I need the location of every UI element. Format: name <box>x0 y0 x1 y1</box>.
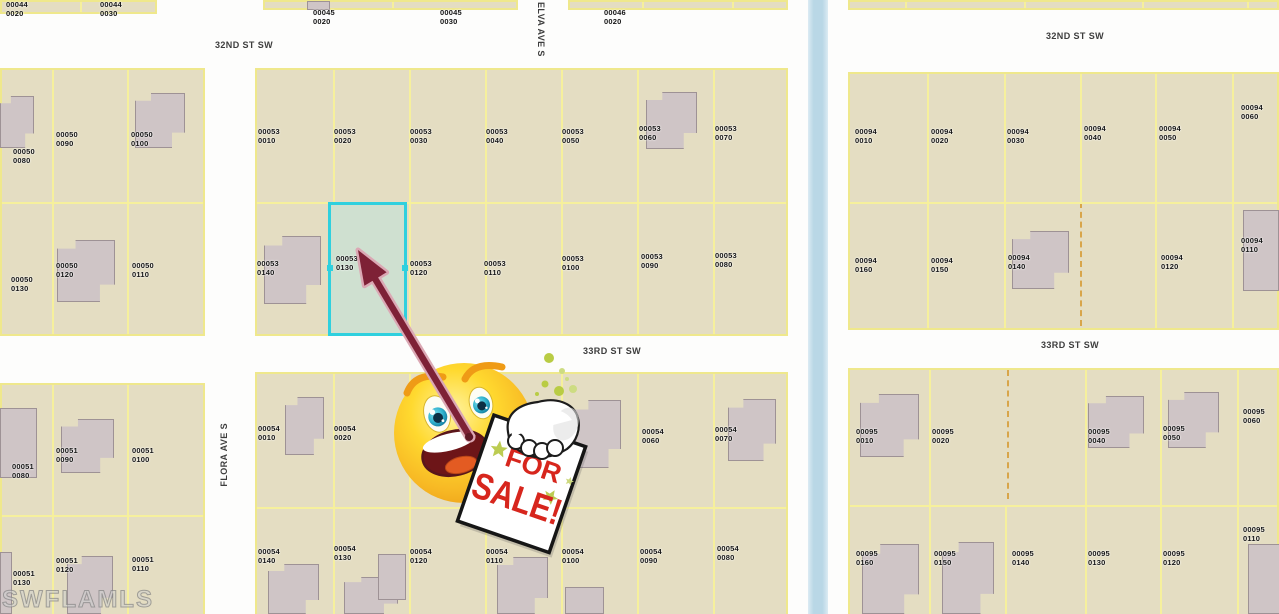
parcel-label: 00094 0060 <box>1241 104 1263 121</box>
parcel-label: 00053 0020 <box>334 128 356 145</box>
parcel-label: 00095 0040 <box>1088 428 1110 445</box>
parcel-label: 00054 0080 <box>717 545 739 562</box>
canal-waterway <box>808 0 828 614</box>
parcel-label: 00053 0040 <box>486 128 508 145</box>
parcel-label: 00094 0150 <box>931 257 953 274</box>
parcel-label: 00051 0110 <box>132 556 154 573</box>
parcel-label: 00053 0130 <box>336 255 358 272</box>
parcel-label: 00094 0140 <box>1008 254 1030 271</box>
mls-watermark: SWFLAMLS <box>2 586 154 614</box>
map-block <box>848 72 1279 330</box>
parcel-label: 00051 0090 <box>56 447 78 464</box>
parcel-label: 00053 0110 <box>484 260 506 277</box>
parcel-label: 00050 0130 <box>11 276 33 293</box>
parcel-corner-nub <box>327 265 333 271</box>
map-block <box>263 0 518 10</box>
parcel-label: 00053 0120 <box>410 260 432 277</box>
parcel-label: 00095 0120 <box>1163 550 1185 567</box>
parcel-label: 00054 0130 <box>334 545 356 562</box>
parcel-label: 00044 0030 <box>100 1 122 18</box>
parcel-label: 00051 0120 <box>56 557 78 574</box>
parcel-label: 00094 0010 <box>855 128 877 145</box>
parcel-label: 00053 0100 <box>562 255 584 272</box>
parcel-label: 00053 0140 <box>257 260 279 277</box>
parcel-label: 00053 0090 <box>641 253 663 270</box>
parcel-corner-nub <box>402 265 408 271</box>
parcel-label: 00054 0020 <box>334 425 356 442</box>
parcel-label: 00054 0110 <box>486 548 508 565</box>
parcel-label: 00054 0070 <box>715 426 737 443</box>
parcel-label: 00054 0090 <box>640 548 662 565</box>
parcel-label: 00050 0120 <box>56 262 78 279</box>
map-block <box>568 0 788 10</box>
building-footprint <box>378 554 406 600</box>
parcel-label: 00095 0150 <box>934 550 956 567</box>
parcel-label: 00050 0090 <box>56 131 78 148</box>
parcel-label: 00050 0100 <box>131 131 153 148</box>
parcel-label: 00051 0100 <box>132 447 154 464</box>
building-footprint <box>565 587 604 614</box>
parcel-label: 00053 0050 <box>562 128 584 145</box>
street-label: 32ND ST SW <box>1046 31 1104 41</box>
parcel-label: 00053 0010 <box>258 128 280 145</box>
parcel-label: 00051 0130 <box>13 570 35 587</box>
street-label: FLORA AVE S <box>219 423 229 487</box>
parcel-label: 00053 0030 <box>410 128 432 145</box>
parcel-label: 00044 0020 <box>6 1 28 18</box>
parcel-label: 00054 0010 <box>258 425 280 442</box>
parcel-label: 00095 0130 <box>1088 550 1110 567</box>
parcel-label: 00054 0140 <box>258 548 280 565</box>
parcel-label: 00095 0050 <box>1163 425 1185 442</box>
parcel-label: 00094 0020 <box>931 128 953 145</box>
street-label: 33RD ST SW <box>583 346 641 356</box>
parcel-label: 00045 0020 <box>313 9 335 26</box>
parcel-label: 00094 0120 <box>1161 254 1183 271</box>
parcel-map[interactable]: 00044 002000044 003000045 002000045 0030… <box>0 0 1279 614</box>
parcel-label: 00095 0010 <box>856 428 878 445</box>
parcel-label: 00054 0120 <box>410 548 432 565</box>
parcel-label: 00094 0160 <box>855 257 877 274</box>
parcel-label: 00051 0080 <box>12 463 34 480</box>
parcel-label: 00095 0140 <box>1012 550 1034 567</box>
parcel-label: 00053 0070 <box>715 125 737 142</box>
parcel-label: 00094 0050 <box>1159 125 1181 142</box>
street-label: ELVA AVE S <box>536 2 546 57</box>
parcel-label: 00095 0020 <box>932 428 954 445</box>
parcel-label: 00053 0060 <box>639 125 661 142</box>
parcel-label: 00095 0110 <box>1243 526 1265 543</box>
parcel-label: 00095 0160 <box>856 550 878 567</box>
parcel-label: 00054 0060 <box>642 428 664 445</box>
parcel-label: 00095 0060 <box>1243 408 1265 425</box>
parcel-label: 00050 0080 <box>13 148 35 165</box>
building-footprint <box>1248 544 1279 614</box>
parcel-label: 00094 0040 <box>1084 125 1106 142</box>
parcel-label: 00094 0110 <box>1241 237 1263 254</box>
parcel-label: 00053 0080 <box>715 252 737 269</box>
parcel-label: 00094 0030 <box>1007 128 1029 145</box>
street-label: 33RD ST SW <box>1041 340 1099 350</box>
parcel-label: 00054 0100 <box>562 548 584 565</box>
parcel-label: 00046 0020 <box>604 9 626 26</box>
parcel-label: 00045 0030 <box>440 9 462 26</box>
street-label: 32ND ST SW <box>215 40 273 50</box>
map-block <box>848 0 1279 10</box>
parcel-label: 00050 0110 <box>132 262 154 279</box>
